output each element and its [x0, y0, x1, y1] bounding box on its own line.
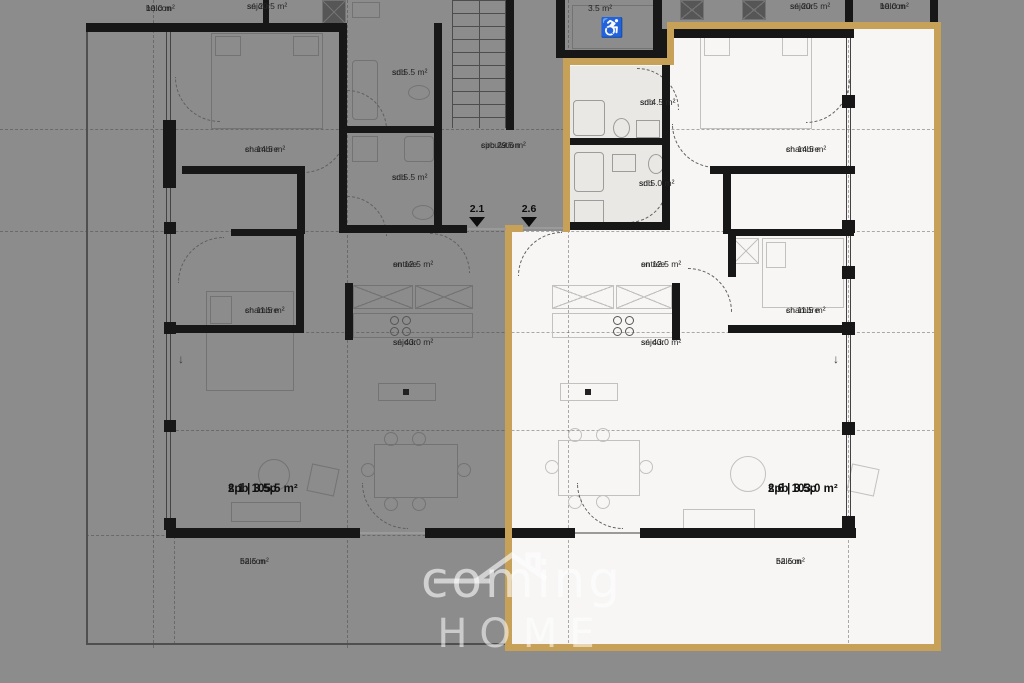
wall	[296, 229, 304, 332]
highlight-outline	[563, 58, 570, 232]
window-wall	[846, 38, 851, 530]
wall	[556, 50, 662, 58]
pillow	[210, 296, 232, 324]
wall	[163, 120, 176, 188]
highlight-outline	[563, 58, 674, 65]
chair	[384, 432, 398, 446]
wall-post	[842, 220, 855, 233]
coming-home-watermark: coming HOME	[372, 547, 672, 659]
wall	[339, 126, 442, 133]
vanity	[612, 154, 636, 172]
highlight-outline	[667, 22, 674, 65]
elevator-area-label: 3.5 m²	[588, 3, 612, 13]
wall	[86, 23, 347, 32]
wall-post	[842, 95, 855, 108]
shaft-box	[322, 0, 346, 24]
staircase-divider	[479, 0, 480, 128]
sofa	[231, 502, 301, 522]
chair	[361, 463, 375, 477]
room-area: 10.0 m²	[880, 1, 909, 12]
floorplan-canvas: ♿	[0, 0, 1024, 683]
room-area: sn 43.0 m²	[393, 337, 433, 348]
wall	[728, 229, 854, 236]
door-arc	[362, 483, 408, 529]
balcony-edge	[86, 30, 88, 645]
wall-post	[842, 266, 855, 279]
room-area: sn 11.5 m²	[245, 305, 285, 316]
unit-26-area: spb 103.0 m²	[768, 483, 838, 496]
wall	[640, 528, 856, 538]
room-area: 10.0 m²	[146, 3, 175, 14]
room-area: sn 5.5 m²	[392, 172, 427, 183]
wall	[662, 29, 854, 38]
door-arc	[175, 77, 220, 122]
door-opening	[468, 228, 506, 230]
wall	[506, 0, 514, 130]
wardrobe	[616, 285, 672, 309]
highlight-outline	[934, 22, 941, 651]
wall-post	[164, 518, 176, 530]
room-area: sn 14.5 m²	[245, 144, 285, 155]
wall	[728, 325, 854, 333]
toilet	[613, 118, 630, 138]
shaft-box	[742, 0, 766, 20]
highlight-outline	[667, 22, 941, 29]
toilet	[412, 205, 434, 220]
down-arrow: ↓	[178, 352, 184, 366]
chair	[568, 428, 582, 442]
door-marker-triangle-icon	[521, 217, 537, 227]
wall	[345, 283, 353, 340]
grid-line	[166, 430, 940, 431]
wall	[710, 166, 855, 174]
wheelchair-icon: ♿	[600, 16, 624, 40]
room-area: sn 20.5 m²	[790, 1, 830, 12]
door-opening	[575, 532, 640, 534]
door-opening	[523, 227, 563, 229]
wall	[672, 283, 680, 340]
wall	[297, 174, 305, 234]
shaft-box	[352, 2, 380, 18]
bathtub	[574, 152, 604, 192]
chair	[639, 460, 653, 474]
door-arc	[347, 90, 387, 130]
wall	[231, 229, 303, 236]
wardrobe	[353, 285, 413, 309]
room-area: sn 4.5 m²	[640, 97, 675, 108]
grid-line	[0, 129, 940, 130]
wall	[845, 0, 853, 22]
wall-post	[842, 422, 855, 435]
wardrobe	[733, 238, 759, 264]
room-area: sn 12.5 m²	[641, 259, 681, 270]
wall-post	[164, 322, 176, 334]
room-area: sn 43.0 m²	[641, 337, 681, 348]
vanity	[636, 120, 660, 138]
pillow	[766, 242, 786, 268]
wall	[930, 0, 938, 22]
pillow	[782, 36, 808, 56]
wall-post	[164, 222, 176, 234]
shower	[352, 136, 378, 162]
room-area: sn 14.5 m²	[786, 144, 826, 155]
wardrobe	[415, 285, 473, 309]
window-wall	[166, 32, 171, 528]
wall	[566, 222, 670, 230]
room-area: spb 29.5 m²	[481, 140, 526, 151]
wall	[566, 138, 662, 145]
toilet	[408, 85, 430, 100]
shaft-box	[680, 0, 704, 20]
room-area: sn 5.5 m²	[392, 67, 427, 78]
door-arc	[178, 237, 224, 283]
door-opening	[360, 532, 425, 534]
sink-dot	[403, 389, 409, 395]
wall	[174, 325, 304, 333]
shower	[573, 100, 605, 136]
room-area: sn 12.5 m²	[393, 259, 433, 270]
door-marker-triangle-icon	[469, 217, 485, 227]
wall-post	[842, 516, 855, 529]
down-arrow: ↓	[833, 352, 839, 366]
chair	[412, 497, 426, 511]
coffee-table	[730, 456, 766, 492]
bathtub	[404, 136, 434, 162]
kitchen-counter	[353, 313, 473, 338]
watermark-line2: HOME	[437, 611, 606, 657]
unit-door-marker-label: 2.1	[470, 203, 485, 215]
chair	[412, 432, 426, 446]
chair	[596, 428, 610, 442]
room-area: sn 20.5 m²	[247, 1, 287, 12]
room-area: 52.5 m²	[240, 556, 269, 567]
chair	[457, 463, 471, 477]
armchair	[846, 463, 879, 496]
room-area: sn 5.0 m²	[639, 178, 674, 189]
sofa	[683, 509, 755, 529]
room-area: 52.5 m²	[776, 556, 805, 567]
wall	[728, 229, 736, 277]
chair	[545, 460, 559, 474]
armchair	[306, 463, 339, 496]
wardrobe	[552, 285, 614, 309]
pillow	[704, 36, 730, 56]
sink-dot	[585, 389, 591, 395]
wall-post	[164, 420, 176, 432]
wall	[339, 225, 467, 233]
wall-post	[842, 322, 855, 335]
grid-line	[174, 536, 175, 644]
wall	[166, 528, 360, 538]
wall	[425, 528, 575, 538]
grid-line	[153, 0, 154, 648]
pillow	[293, 36, 319, 56]
pillow	[215, 36, 241, 56]
wall	[723, 174, 731, 234]
unit-21-area: spb 105.5 m²	[228, 483, 298, 496]
room-area: sn 11.5 m²	[786, 305, 826, 316]
door-arc	[430, 233, 470, 273]
wall	[182, 166, 305, 174]
unit-door-marker-label: 2.6	[522, 203, 537, 215]
